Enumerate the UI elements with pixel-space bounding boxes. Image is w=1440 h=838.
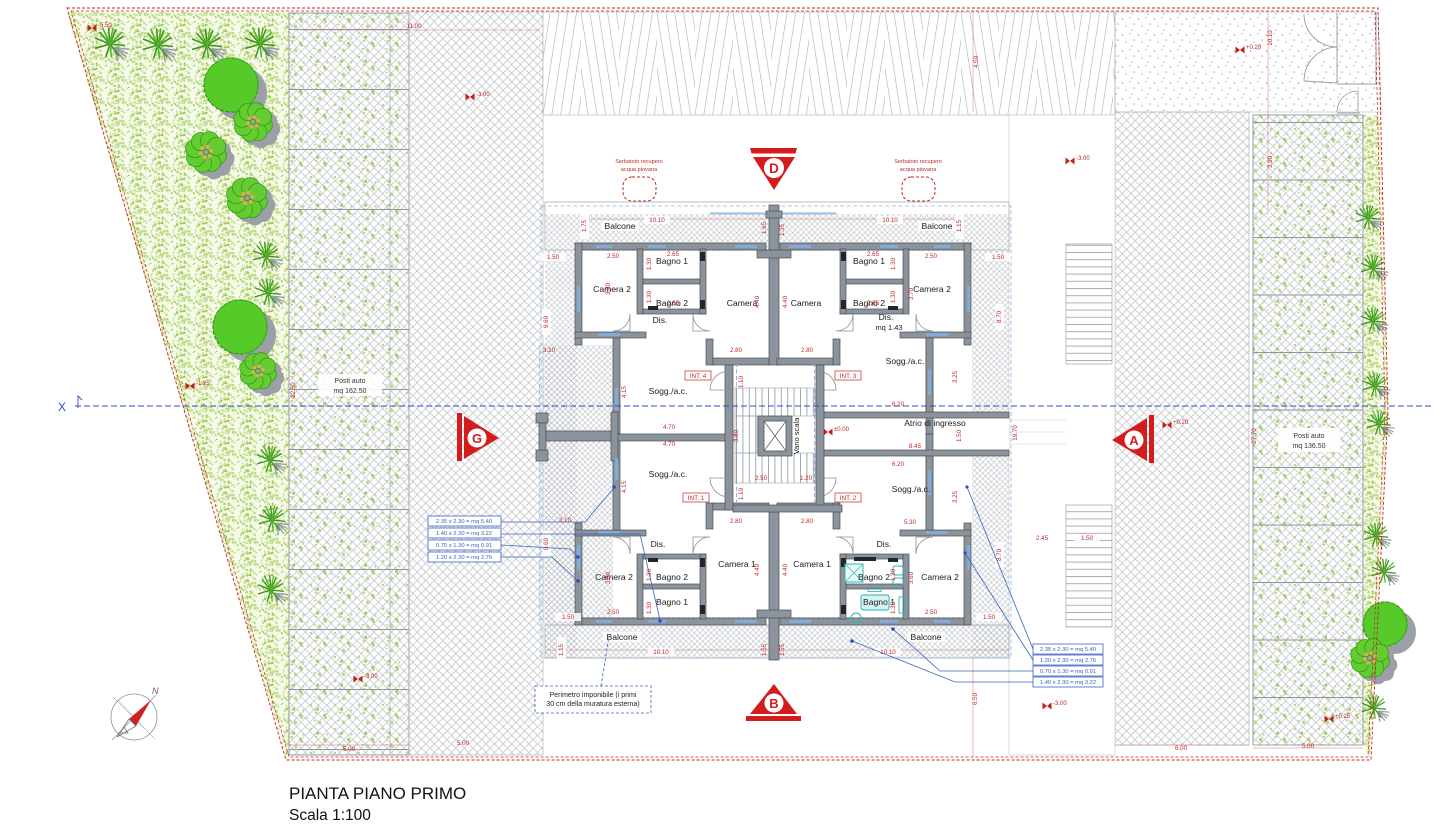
- svg-text:4.40: 4.40: [782, 563, 789, 576]
- svg-text:A: A: [1129, 433, 1139, 448]
- svg-text:1.65: 1.65: [761, 221, 768, 234]
- svg-text:5.00: 5.00: [343, 746, 356, 753]
- svg-text:mq 1.43: mq 1.43: [875, 323, 902, 332]
- svg-text:mq 162.50: mq 162.50: [333, 388, 366, 395]
- svg-text:1.20: 1.20: [800, 475, 813, 482]
- svg-text:Serbatoio recupero: Serbatoio recupero: [894, 159, 942, 165]
- svg-text:acqua piovana: acqua piovana: [900, 167, 937, 173]
- svg-text:2.65: 2.65: [867, 300, 880, 307]
- svg-text:Vano scala: Vano scala: [792, 417, 801, 454]
- svg-text:10.10: 10.10: [649, 217, 665, 224]
- svg-text:10.10: 10.10: [882, 217, 898, 224]
- svg-text:4.15: 4.15: [621, 385, 628, 398]
- svg-text:9.60: 9.60: [543, 315, 550, 328]
- svg-text:2.35 x 2.30 = mq 5.40: 2.35 x 2.30 = mq 5.40: [436, 519, 492, 525]
- svg-text:5.30: 5.30: [904, 519, 917, 526]
- svg-text:3.60: 3.60: [908, 571, 915, 584]
- svg-text:INT. 4: INT. 4: [690, 373, 707, 380]
- svg-text:2.50: 2.50: [755, 475, 768, 482]
- svg-text:2.50: 2.50: [607, 609, 620, 616]
- svg-text:0.70 x 1.30 = mq 0.91: 0.70 x 1.30 = mq 0.91: [436, 543, 492, 549]
- svg-text:6.00: 6.00: [1175, 745, 1188, 752]
- svg-text:G: G: [472, 431, 482, 446]
- svg-text:3.80: 3.80: [605, 571, 612, 584]
- svg-text:8.70: 8.70: [996, 548, 1003, 561]
- svg-text:2.35 x 2.30 = mq 5.40: 2.35 x 2.30 = mq 5.40: [1040, 647, 1096, 653]
- svg-text:Balcone: Balcone: [604, 221, 635, 231]
- svg-text:1.15: 1.15: [956, 219, 963, 232]
- svg-text:Sogg./a.c.: Sogg./a.c.: [892, 484, 931, 494]
- svg-text:B: B: [769, 696, 778, 711]
- svg-text:2.50: 2.50: [607, 253, 620, 260]
- svg-text:Camera: Camera: [727, 298, 758, 308]
- svg-text:3.80: 3.80: [605, 282, 612, 295]
- svg-text:3.25: 3.25: [952, 490, 959, 503]
- svg-text:1.20 x 2.30 = mq 2.76: 1.20 x 2.30 = mq 2.76: [436, 555, 492, 561]
- svg-text:1.30: 1.30: [646, 290, 653, 303]
- svg-text:-3.00: -3.00: [364, 674, 378, 680]
- svg-text:-3.00: -3.00: [1076, 156, 1090, 162]
- svg-text:1.15: 1.15: [558, 643, 565, 656]
- svg-text:2.45: 2.45: [1036, 535, 1049, 542]
- svg-text:D: D: [769, 161, 779, 176]
- svg-text:2.80: 2.80: [730, 347, 743, 354]
- svg-text:Perimetro imponibile (i primi: Perimetro imponibile (i primi: [550, 692, 637, 699]
- svg-text:4.15: 4.15: [621, 480, 628, 493]
- svg-text:3.10: 3.10: [559, 517, 572, 524]
- svg-text:INT. 3: INT. 3: [840, 373, 857, 380]
- svg-text:Atrio di ingresso: Atrio di ingresso: [904, 418, 966, 428]
- svg-text:acqua piovana: acqua piovana: [621, 167, 658, 173]
- svg-text:+0.20: +0.20: [1173, 420, 1189, 426]
- svg-text:Camera 1: Camera 1: [718, 559, 756, 569]
- svg-text:1.20 x 2.30 = mq 2.76: 1.20 x 2.30 = mq 2.76: [1040, 658, 1096, 664]
- svg-text:Bagno 2: Bagno 2: [656, 572, 688, 582]
- svg-text:4.50: 4.50: [973, 55, 980, 68]
- svg-text:+0.20: +0.20: [1246, 45, 1262, 51]
- svg-text:1.30: 1.30: [646, 257, 653, 270]
- svg-text:10.10: 10.10: [653, 649, 669, 656]
- svg-text:4.70: 4.70: [663, 441, 676, 448]
- svg-text:-3.00: -3.00: [1053, 701, 1067, 707]
- svg-text:4.70: 4.70: [663, 424, 676, 431]
- svg-text:1.35: 1.35: [779, 223, 786, 236]
- svg-text:X: X: [58, 400, 66, 414]
- svg-text:1.30: 1.30: [890, 568, 897, 581]
- svg-text:Balcone: Balcone: [606, 632, 637, 642]
- svg-text:Dis.: Dis.: [653, 315, 668, 325]
- svg-text:Camera 2: Camera 2: [921, 572, 959, 582]
- svg-text:2.50: 2.50: [925, 609, 938, 616]
- svg-text:2.80: 2.80: [801, 518, 814, 525]
- svg-text:1.10: 1.10: [738, 375, 745, 388]
- svg-text:1.30: 1.30: [890, 290, 897, 303]
- svg-text:1.40 x 2.30 = mq 3.22: 1.40 x 2.30 = mq 3.22: [1040, 680, 1096, 686]
- svg-text:1.50: 1.50: [1081, 535, 1094, 542]
- svg-text:Bagno 2: Bagno 2: [858, 572, 890, 582]
- svg-text:8.45: 8.45: [909, 443, 922, 450]
- svg-text:10.10: 10.10: [1267, 30, 1274, 46]
- svg-text:mq 136.50: mq 136.50: [1292, 443, 1325, 450]
- svg-text:Balcone: Balcone: [910, 632, 941, 642]
- svg-text:5.00: 5.00: [1302, 743, 1315, 750]
- svg-text:Camera 1: Camera 1: [793, 559, 831, 569]
- svg-text:19.70: 19.70: [1012, 425, 1019, 441]
- svg-text:27.70: 27.70: [1251, 428, 1258, 444]
- svg-text:INT. 2: INT. 2: [840, 495, 857, 502]
- svg-text:Posti auto: Posti auto: [334, 378, 365, 385]
- svg-text:Scala 1:100: Scala 1:100: [289, 807, 371, 824]
- svg-text:2.50: 2.50: [925, 253, 938, 260]
- svg-text:Bagno 1: Bagno 1: [656, 597, 688, 607]
- svg-text:-3.00: -3.00: [476, 92, 490, 98]
- svg-text:11.00: 11.00: [406, 23, 422, 30]
- svg-text:Camera 2: Camera 2: [595, 572, 633, 582]
- svg-text:4.40: 4.40: [754, 563, 761, 576]
- svg-text:2.65: 2.65: [667, 251, 680, 258]
- svg-text:INT. 1: INT. 1: [688, 495, 705, 502]
- svg-text:Camera 2: Camera 2: [913, 284, 951, 294]
- svg-text:3.70: 3.70: [908, 287, 915, 300]
- svg-text:3.80: 3.80: [733, 429, 740, 442]
- svg-text:Balcone: Balcone: [921, 221, 952, 231]
- svg-text:Posti auto: Posti auto: [1293, 433, 1324, 440]
- svg-text:1.30: 1.30: [646, 601, 653, 614]
- svg-text:Dis.: Dis.: [879, 312, 894, 322]
- svg-text:1.10: 1.10: [738, 487, 745, 500]
- svg-text:Sogg./a.c.: Sogg./a.c.: [649, 386, 688, 396]
- svg-text:1.50: 1.50: [956, 429, 963, 442]
- svg-text:1.55: 1.55: [779, 643, 786, 656]
- svg-text:3.90: 3.90: [1267, 155, 1274, 168]
- svg-text:Serbatoio recupero: Serbatoio recupero: [615, 159, 663, 165]
- svg-text:1.40 x 2.30 = mq 3.22: 1.40 x 2.30 = mq 3.22: [436, 531, 492, 537]
- svg-text:1.50: 1.50: [992, 254, 1005, 261]
- svg-text:1.75: 1.75: [581, 219, 588, 232]
- svg-text:8.70: 8.70: [996, 310, 1003, 323]
- svg-text:N: N: [152, 686, 159, 696]
- svg-text:Dis.: Dis.: [877, 539, 892, 549]
- svg-text:1.50: 1.50: [547, 254, 560, 261]
- svg-text:5.00: 5.00: [457, 740, 470, 747]
- svg-text:Sogg./a.c.: Sogg./a.c.: [886, 356, 925, 366]
- svg-text:4.40: 4.40: [782, 295, 789, 308]
- svg-text:Camera: Camera: [791, 298, 822, 308]
- svg-text:6.20: 6.20: [892, 461, 905, 468]
- svg-text:4.40: 4.40: [754, 295, 761, 308]
- svg-text:+0.25: +0.25: [1335, 714, 1351, 720]
- svg-text:±0.00: ±0.00: [834, 427, 850, 433]
- svg-text:Dis.: Dis.: [651, 539, 666, 549]
- svg-text:-1.25: -1.25: [196, 381, 210, 387]
- svg-text:6.20: 6.20: [892, 401, 905, 408]
- svg-text:1.30: 1.30: [890, 257, 897, 270]
- svg-text:1.55: 1.55: [761, 643, 768, 656]
- svg-text:3.10: 3.10: [543, 347, 556, 354]
- svg-text:32.50: 32.50: [290, 382, 297, 398]
- svg-text:1.30: 1.30: [890, 601, 897, 614]
- svg-text:1.50: 1.50: [562, 614, 575, 621]
- svg-text:Sogg./a.c.: Sogg./a.c.: [649, 469, 688, 479]
- svg-text:2.80: 2.80: [730, 518, 743, 525]
- svg-text:PIANTA PIANO PRIMO: PIANTA PIANO PRIMO: [289, 784, 466, 803]
- svg-text:2.65: 2.65: [867, 251, 880, 258]
- svg-text:-5.50: -5.50: [98, 23, 112, 29]
- svg-text:10.10: 10.10: [880, 649, 896, 656]
- svg-text:3.25: 3.25: [952, 370, 959, 383]
- svg-text:Camera 2: Camera 2: [593, 284, 631, 294]
- svg-text:6.50: 6.50: [972, 692, 979, 705]
- svg-text:0.70 x 1.30 = mq 0.91: 0.70 x 1.30 = mq 0.91: [1040, 669, 1096, 675]
- svg-text:1.50: 1.50: [983, 614, 996, 621]
- svg-text:30 cm della muratura esterna): 30 cm della muratura esterna): [546, 701, 639, 708]
- svg-text:2.65: 2.65: [667, 300, 680, 307]
- svg-text:2.80: 2.80: [801, 347, 814, 354]
